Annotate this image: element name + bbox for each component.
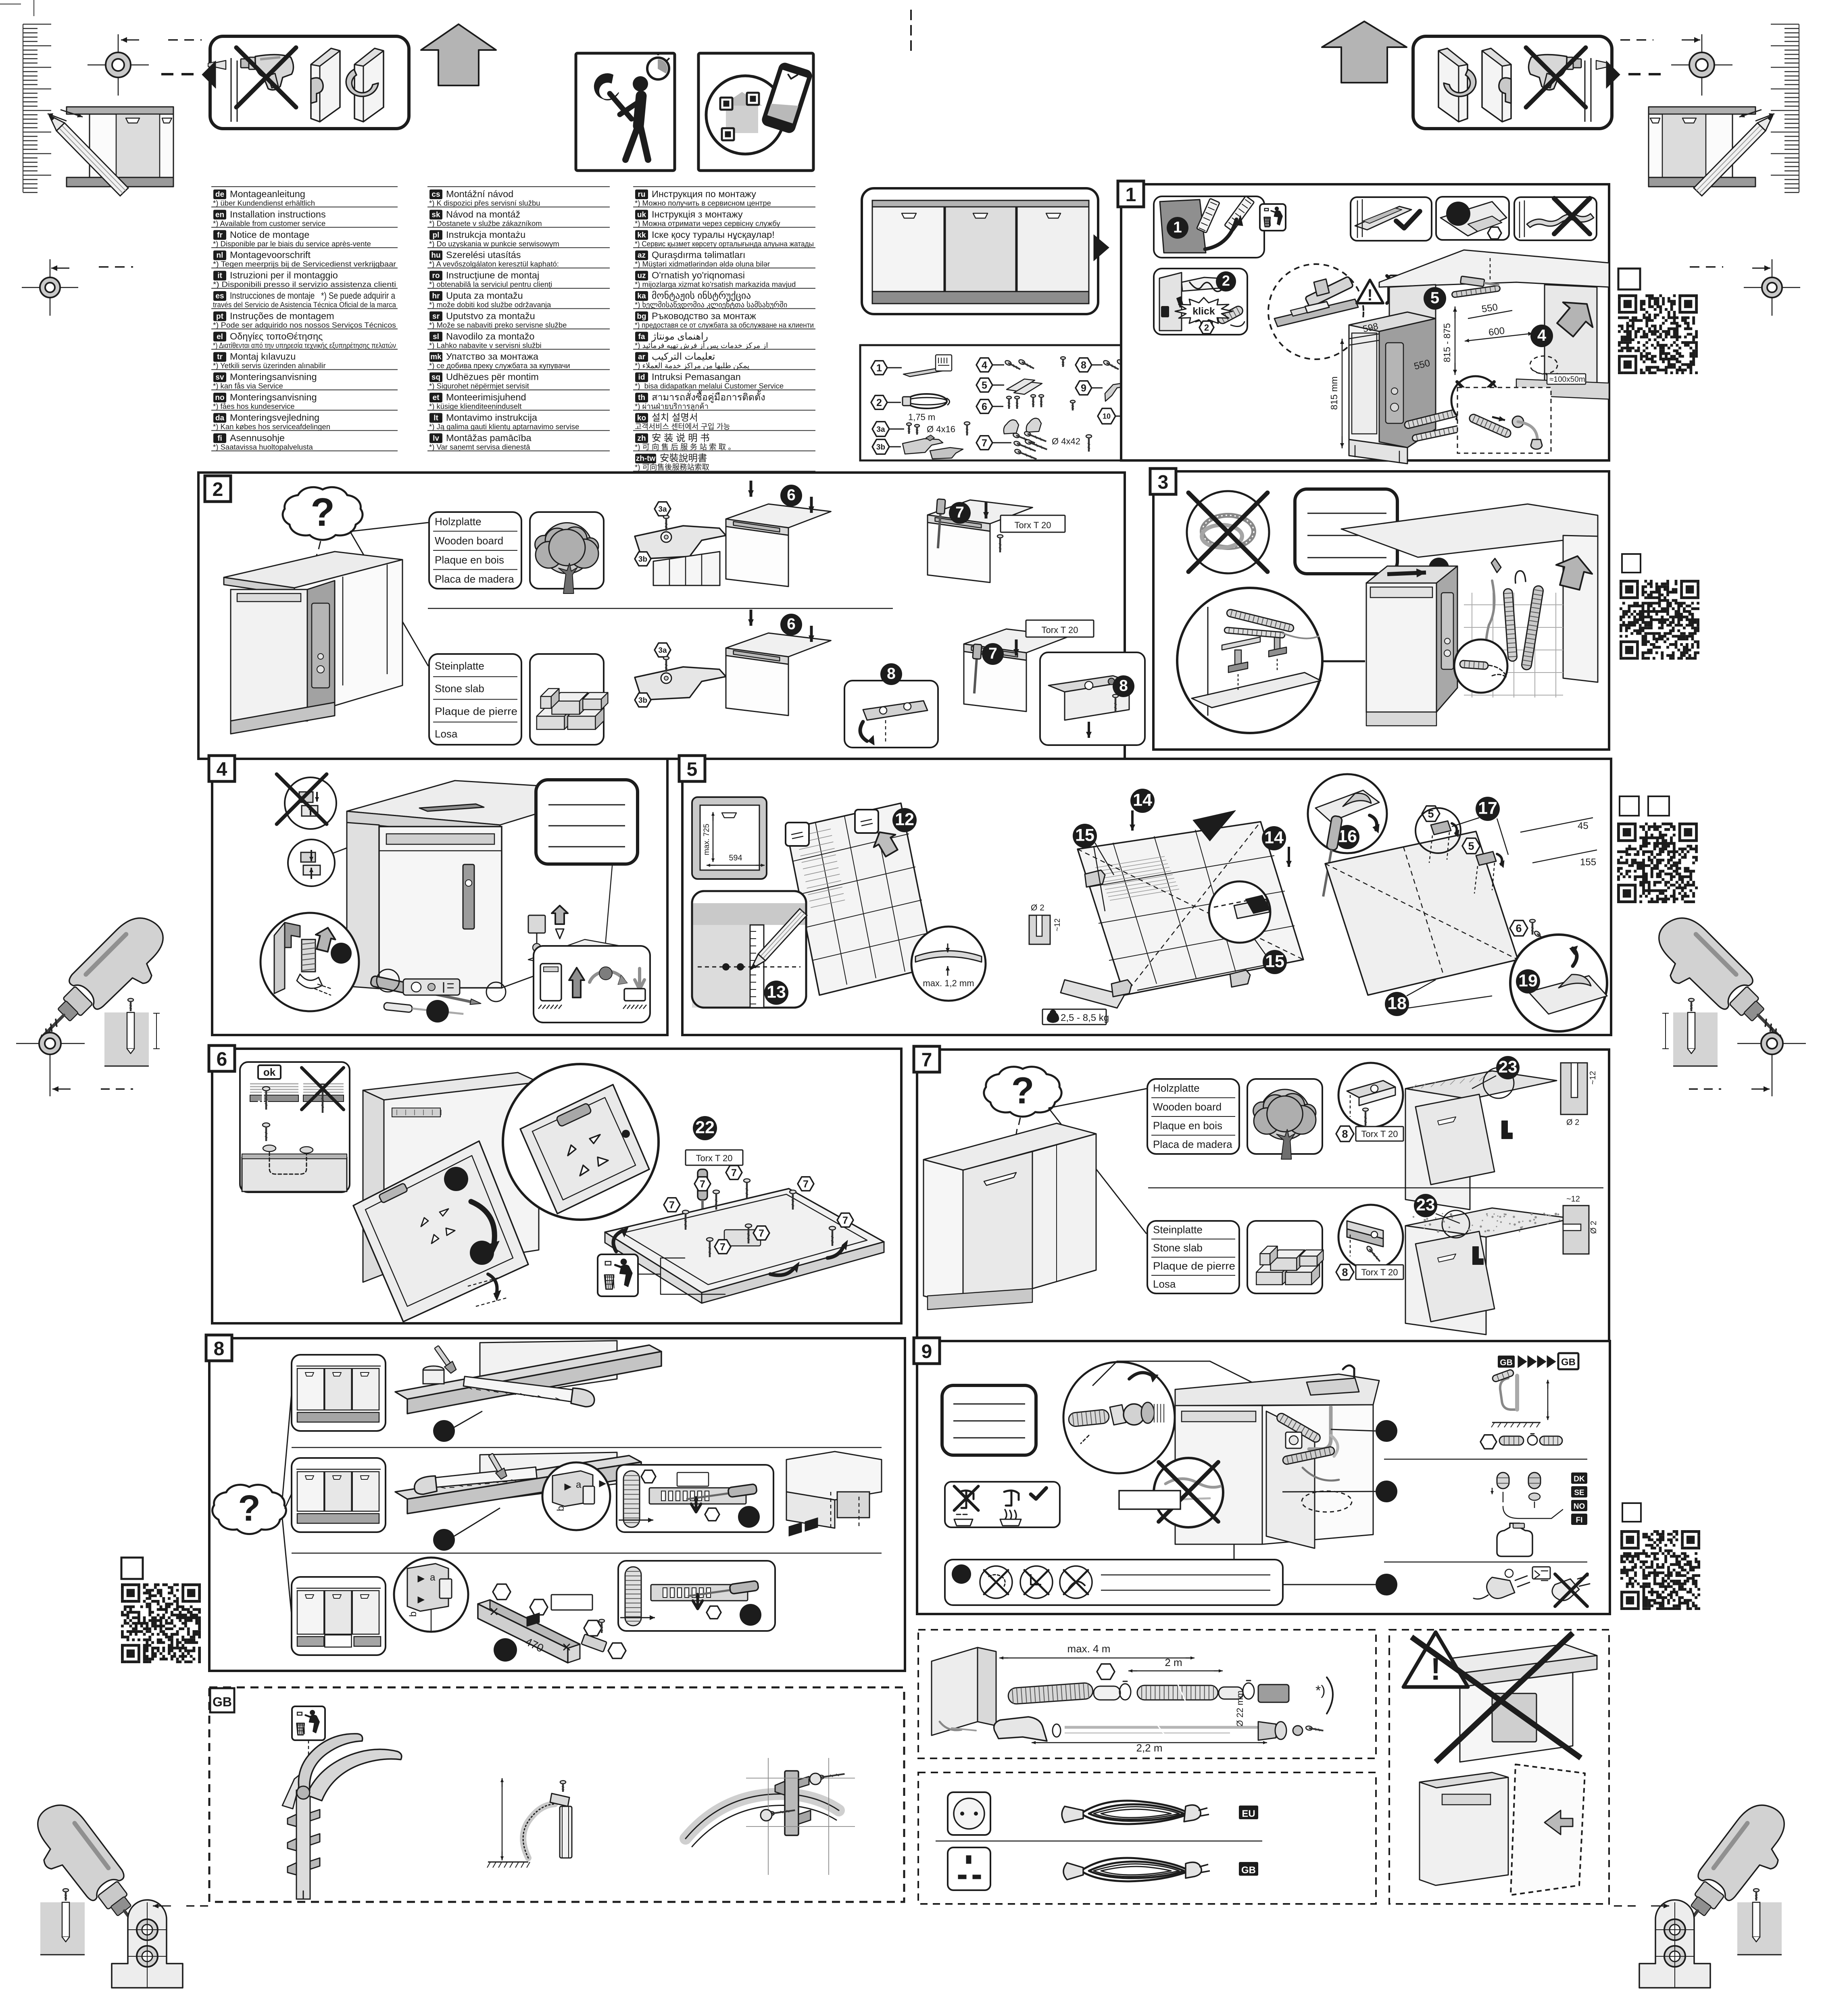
svg-text:18: 18 [1387,994,1407,1013]
svg-text:安裝說明書: 安裝說明書 [660,453,707,463]
svg-text:*) Disponible par le biais du: *) Disponible par le biais du service ap… [213,240,371,248]
svg-text:Ø 2: Ø 2 [1031,903,1044,912]
svg-text:Stone slab: Stone slab [435,683,484,695]
svg-text:Placa de madera: Placa de madera [435,573,514,585]
svg-text:Instrucciones de montaje *): Instrucciones de montaje *) Se puede adq… [230,290,396,301]
svg-text:8: 8 [1342,1266,1348,1279]
svg-text:max. 725: max. 725 [703,824,711,855]
svg-text:Montāžas pamācība: Montāžas pamācība [446,433,532,443]
svg-text:Οδηγίες τοποΘέτησης: Οδηγίες τοποΘέτησης [230,331,323,342]
svg-text:Іске қосу туралы нұсқаулар!: Іске қосу туралы нұсқаулар! [652,229,775,240]
svg-text:*) 可 向 售 后 服 务 站 索 取 。: *) 可 向 售 后 服 务 站 索 取 。 [635,443,736,451]
svg-text:2: 2 [1222,273,1230,289]
svg-text:?: ? [238,1488,261,1529]
svg-text:max. 1,2 mm: max. 1,2 mm [923,978,974,988]
svg-text:*) Ją galima gauti klientų apt: *) Ją galima gauti klientų aptarnavimo s… [429,422,579,431]
svg-text:*) Yetkili servis üzerinden al: *) Yetkili servis üzerinden alınabilir [213,361,326,370]
svg-text:*) A vevőszolgálaton keresztül: *) A vevőszolgálaton keresztül kapható: [429,260,559,268]
svg-text:راهنمای مونتاژ: راهنمای مونتاژ [651,331,708,342]
svg-text:*) يمكن طلبها من مراكز خدمة ال: *) يمكن طلبها من مراكز خدمة العملاء [635,361,749,370]
svg-text:Návod na montáž: Návod na montáž [446,209,520,219]
svg-text:Plaque en bois: Plaque en bois [1153,1120,1222,1132]
svg-text:*) Lahko nabavite v servisni s: *) Lahko nabavite v servisni službi [429,341,542,350]
svg-text:*) über Kundendienst erhältlic: *) über Kundendienst erhältlich [213,199,315,207]
svg-text:ko: ko [637,414,646,422]
svg-text:*) предоставя се от службата з: *) предоставя се от службата за обслужва… [635,321,814,329]
svg-text:SE: SE [1574,1489,1584,1497]
svg-text:hu: hu [431,251,440,260]
svg-text:1: 1 [876,362,882,374]
svg-text:Torx T 20: Torx T 20 [696,1153,733,1163]
svg-text:Torx T 20: Torx T 20 [1042,625,1078,635]
svg-text:Montaj kılavuzu: Montaj kılavuzu [230,351,296,362]
svg-text:hr: hr [432,292,440,300]
svg-text:*) Saatavissa huoltopalvelusta: *) Saatavissa huoltopalvelusta [213,443,313,451]
svg-text:lt: lt [434,414,438,422]
svg-text:fa: fa [638,333,645,341]
svg-text:Plaque de pierre: Plaque de pierre [1153,1260,1235,1272]
svg-text:*) از مرکز خدمات پس از فرش تهی: *) از مرکز خدمات پس از فرش تهیه فرمائید [635,341,768,350]
svg-text:2: 2 [876,397,882,408]
svg-text:NO: NO [1574,1502,1585,1511]
svg-text:O'rnatish yo'riqnomasi: O'rnatish yo'riqnomasi [652,270,745,281]
svg-text:6: 6 [217,1049,227,1070]
svg-text:9: 9 [921,1341,932,1362]
svg-text:8: 8 [887,665,896,682]
svg-text:2: 2 [213,479,223,500]
svg-text:*) bisa didapatkan melalui Cu: *) bisa didapatkan melalui Customer Serv… [635,382,784,390]
svg-text:მონტაჟის ინსტრუქცია: მონტაჟის ინსტრუქცია [652,290,751,301]
svg-text:*) Можно получить в сервисном: *) Можно получить в сервисном центре [635,199,771,207]
svg-text:et: et [433,394,440,402]
svg-text:FI: FI [1576,1516,1583,1524]
svg-text:7: 7 [955,504,964,521]
svg-text:*) Pode ser adquirido nos noss: *) Pode ser adquirido nos nossos Serviço… [213,321,396,329]
svg-text:สามารถสั่งซื้อคู่มือการติดตั้ง: สามารถสั่งซื้อคู่มือการติดตั้ง [652,390,765,403]
svg-text:*) Dostanete v službe zákazník: *) Dostanete v službe zákazníkom [429,219,542,227]
svg-text:*) obtenabilă la serviciul pen: *) obtenabilă la serviciul pentru clienţ… [429,280,552,289]
svg-text:sq: sq [432,373,440,382]
svg-text:*) može dobiti kod službe održ: *) može dobiti kod službe održavanja [429,300,551,309]
svg-text:Intruksi Pemasangan: Intruksi Pemasangan [652,372,741,382]
svg-text:12: 12 [895,810,914,829]
svg-text:GB: GB [1561,1357,1576,1368]
svg-text:14: 14 [1133,791,1152,810]
svg-text:Holzplatte: Holzplatte [435,515,482,527]
svg-text:Uputa za montažu: Uputa za montažu [446,290,523,301]
svg-text:Stone slab: Stone slab [1153,1242,1203,1254]
svg-text:Monteringsanvisning: Monteringsanvisning [230,372,317,382]
svg-text:3b: 3b [876,443,885,452]
svg-text:7: 7 [921,1050,932,1071]
svg-text:تعليمات التركيب: تعليمات التركيب [652,351,715,362]
svg-text:it: it [217,272,222,280]
svg-text:Instruções de montagem: Instruções de montagem [230,310,334,321]
svg-text:Ø 22 mm: Ø 22 mm [1235,1691,1245,1727]
svg-text:zh-tw: zh-tw [636,454,656,463]
svg-text:2,5 - 8,5 kg: 2,5 - 8,5 kg [1061,1012,1109,1023]
svg-text:pt: pt [216,312,224,321]
svg-text:Plaque en bois: Plaque en bois [435,554,504,566]
svg-text:klick: klick [1192,306,1215,317]
svg-text:id: id [638,373,645,382]
svg-text:4: 4 [982,360,987,371]
svg-text:b: b [408,1612,419,1617]
svg-text:*) Var saņemt servisa dienestā: *) Var saņemt servisa dienestā [429,443,530,451]
svg-text:*) 可向售後服務站索取: *) 可向售後服務站索取 [635,463,709,471]
svg-text:*) се добива преку службата за: *) се добива преку службата за купувачи [429,361,570,370]
svg-text:no: no [215,394,224,402]
svg-text:ok: ok [263,1066,276,1078]
svg-text:*) Müştəri xidmətlərindən əldə: *) Müştəri xidmətlərindən əldə oluna bil… [635,260,770,268]
svg-text:Ръководство за монтаж: Ръководство за монтаж [652,310,756,321]
svg-text:!: ! [1367,286,1372,304]
svg-text:th: th [638,394,645,402]
svg-text:安 装 说 明 书: 安 装 说 明 书 [652,433,710,443]
svg-text:Quraşdırma təlimatları: Quraşdırma təlimatları [652,250,745,260]
svg-text:15: 15 [1075,826,1094,845]
svg-text:≈100x50m: ≈100x50m [1549,375,1585,384]
svg-text:GB: GB [1241,1865,1256,1876]
svg-text:Placa de madera: Placa de madera [1153,1138,1232,1150]
svg-text:max. 4 m: max. 4 m [1067,1643,1111,1655]
svg-text:7: 7 [988,645,997,662]
svg-text:Montážní návod: Montážní návod [446,189,513,199]
svg-text:en: en [215,210,224,219]
svg-text:*) K dispozici přes servisní s: *) K dispozici přes servisní službu [429,199,540,207]
svg-text:23: 23 [1499,1057,1518,1076]
svg-text:*) Available from customer ser: *) Available from customer service [213,219,325,227]
svg-text:Installation instructions: Installation instructions [230,209,326,219]
svg-text:10: 10 [1103,412,1111,420]
svg-text:2: 2 [1204,323,1209,333]
svg-text:6: 6 [1516,923,1522,935]
svg-text:Plaque de pierre: Plaque de pierre [435,705,517,717]
svg-text:14: 14 [1264,828,1284,848]
svg-text:7: 7 [982,437,987,449]
svg-text:Инструкция по монтажу: Инструкция по монтажу [652,189,756,199]
svg-text:4: 4 [217,759,227,780]
svg-text:uk: uk [637,210,646,219]
svg-text:Instrucţiune de montaj: Instrucţiune de montaj [446,270,539,281]
svg-text:8: 8 [214,1338,225,1360]
svg-text:Ø 2: Ø 2 [1589,1221,1598,1234]
svg-text:uz: uz [637,272,646,280]
svg-text:az: az [638,251,646,260]
svg-text:Szerelési utasítás: Szerelési utasítás [446,250,521,260]
svg-text:*) Tegen meerprijs bij de Serv: *) Tegen meerprijs bij de Servicedienst … [213,260,396,268]
svg-text:*): *) [1315,1683,1326,1698]
svg-text:Navodilo za montažo: Navodilo za montažo [446,331,534,342]
svg-text:*) Do uzyskania w punkcie serw: *) Do uzyskania w punkcie serwisowym [429,240,559,248]
svg-text:7: 7 [700,1179,705,1190]
svg-text:*) Διατίθενται από την υπηρεσί: *) Διατίθενται από την υπηρεσία τεχνικής… [213,341,396,350]
svg-text:19: 19 [1518,971,1538,991]
svg-text:*) mijozlarga xizmat ko'rsatis: *) mijozlarga xizmat ko'rsatish markazid… [635,280,796,289]
svg-text:6: 6 [787,615,796,633]
svg-text:sv: sv [215,373,224,382]
svg-text:1: 1 [1173,219,1182,236]
svg-text:Losa: Losa [435,728,458,740]
svg-text:el: el [217,333,223,341]
svg-text:zh: zh [637,434,646,443]
svg-text:*) Kan købes hos serviceafdeli: *) Kan købes hos serviceafdelingen [213,422,330,431]
svg-text:7: 7 [759,1228,764,1239]
svg-text:Monteerimisjuhend: Monteerimisjuhend [446,392,526,402]
svg-text:es: es [215,292,224,300]
svg-text:de: de [215,190,224,199]
svg-text:8: 8 [1342,1128,1348,1140]
svg-text:nl: nl [217,251,223,260]
svg-text:Steinplatte: Steinplatte [1153,1224,1203,1236]
svg-text:b: b [555,1506,566,1511]
svg-text:Montavimo instrukcija: Montavimo instrukcija [446,412,538,423]
svg-text:~12: ~12 [1589,1071,1597,1085]
svg-text:1,75 m: 1,75 m [908,412,935,422]
svg-text:Istruzioni per il montaggio: Istruzioni per il montaggio [230,270,338,281]
svg-text:7: 7 [731,1167,737,1179]
svg-text:*) fåes hos kundeservice: *) fåes hos kundeservice [213,402,295,410]
svg-text:da: da [215,414,225,422]
svg-text:4: 4 [1537,327,1547,344]
svg-text:ro: ro [432,272,440,280]
svg-text:Montagevoorschrift: Montagevoorschrift [230,250,311,260]
svg-text:8: 8 [1081,360,1086,371]
svg-text:5: 5 [982,380,987,391]
svg-text:23: 23 [1416,1195,1435,1214]
svg-text:7: 7 [803,1179,809,1190]
svg-text:Instrukcja montażu: Instrukcja montażu [446,229,525,240]
svg-text:Notice de montage: Notice de montage [230,229,309,240]
svg-text:*) Disponibili presso il servi: *) Disponibili presso il servizio assist… [213,280,396,289]
svg-text:?: ? [311,490,335,534]
svg-text:*) küsige klienditeeninduselt: *) küsige klienditeeninduselt [429,402,521,410]
svg-text:13: 13 [767,983,786,1002]
svg-text:Torx T 20: Torx T 20 [1361,1267,1398,1277]
svg-text:7: 7 [842,1215,848,1226]
svg-text:EU: EU [1242,1808,1255,1819]
svg-text:*) Сервис қызмет көрсету ортал: *) Сервис қызмет көрсету орталығында алу… [635,240,814,248]
svg-text:*) ხელმისაწვდომია კლიენტთა სამ: *) ხელმისაწვდომია კლიენტთა სამსახურში [635,300,787,309]
svg-text:Monteringsanvisning: Monteringsanvisning [230,392,317,402]
svg-text:fi: fi [217,434,222,443]
svg-text:Torx T 20: Torx T 20 [1015,520,1051,530]
svg-text:Monteringsvejledning: Monteringsvejledning [230,412,319,423]
svg-text:ka: ka [637,292,646,300]
svg-text:Asennusohje: Asennusohje [230,433,285,443]
svg-text:3b: 3b [638,555,647,564]
svg-text:Torx T 20: Torx T 20 [1361,1129,1398,1139]
svg-text:~12: ~12 [1053,918,1062,931]
svg-text:8: 8 [1119,677,1128,694]
svg-text:kk: kk [637,231,646,240]
svg-text:sl: sl [433,333,439,341]
svg-text:6: 6 [787,486,796,504]
svg-text:*) Можна отримати через сервіс: *) Можна отримати через сервісну службу [635,219,780,227]
svg-text:3a: 3a [658,646,667,655]
svg-text:Інструкція з монтажу: Інструкція з монтажу [652,209,743,219]
svg-text:sr: sr [432,312,440,321]
svg-text:Упатство за монтажа: Упатство за монтажа [446,351,539,362]
svg-text:Wooden board: Wooden board [1153,1101,1222,1113]
svg-text:a: a [576,1479,582,1490]
svg-text:ar: ar [638,353,646,361]
svg-text:*) ผ่านฝ่ายบริการลูกค้า: *) ผ่านฝ่ายบริการลูกค้า [635,402,709,411]
svg-text:Montageanleitung: Montageanleitung [230,189,305,199]
svg-text:550: 550 [1481,302,1498,314]
svg-text:5: 5 [1430,289,1439,307]
svg-text:tr: tr [217,353,223,361]
svg-text:2,2 m: 2,2 m [1136,1742,1162,1754]
svg-text:17: 17 [1478,799,1497,818]
svg-text:5: 5 [687,759,698,780]
svg-text:5: 5 [1468,840,1474,852]
svg-text:sk: sk [432,210,440,219]
svg-text:mk: mk [430,353,442,361]
svg-text:594: 594 [729,854,742,862]
svg-text:pl: pl [433,231,440,240]
svg-text:7: 7 [720,1241,725,1253]
svg-text:22: 22 [695,1118,715,1137]
svg-text:bg: bg [637,312,646,321]
svg-text:7: 7 [669,1200,675,1211]
svg-text:GB: GB [213,1695,232,1709]
svg-text:155: 155 [1580,857,1596,868]
svg-text:9: 9 [1081,383,1086,394]
svg-text:Steinplatte: Steinplatte [435,660,484,672]
svg-text:6: 6 [982,401,987,412]
svg-text:고객서비스 센터에서 구입 가능: 고객서비스 센터에서 구입 가능 [635,422,730,431]
svg-text:Ø 2: Ø 2 [1566,1118,1579,1127]
svg-text:3a: 3a [658,505,667,514]
svg-text:45: 45 [1578,821,1589,831]
svg-text:815 - 875: 815 - 875 [1442,323,1452,362]
svg-text:DK: DK [1574,1475,1585,1483]
svg-text:*) kan fås via Service: *) kan fås via Service [213,382,283,390]
svg-text:?: ? [1011,1069,1034,1111]
svg-text:cs: cs [432,190,440,199]
svg-text:Ø 4x16: Ø 4x16 [927,424,955,434]
svg-text:설치 설명서: 설치 설명서 [652,412,698,423]
svg-text:3a: 3a [876,425,885,434]
svg-text:a: a [430,1572,436,1583]
svg-text:*) Može se nabaviti preko serv: *) Može se nabaviti preko servisne služb… [429,321,567,329]
svg-text:Losa: Losa [1153,1278,1176,1290]
svg-text:1: 1 [1126,184,1136,206]
svg-text:2 m: 2 m [1165,1656,1182,1668]
svg-text:3b: 3b [638,696,647,705]
svg-text:ru: ru [638,190,646,199]
svg-text:*) Sigurohet nëpërmjet servisi: *) Sigurohet nëpërmjet servisit [429,382,529,390]
svg-text:través del Servicio de Asisten: través del Servicio de Asistencia Técnic… [213,300,396,309]
svg-text:Udhëzues për montim: Udhëzues për montim [446,372,539,382]
svg-text:Wooden board: Wooden board [435,535,503,547]
svg-text:600: 600 [1488,325,1505,338]
svg-text:lv: lv [433,434,439,443]
svg-text:3: 3 [1158,472,1169,493]
svg-text:15: 15 [1265,952,1284,971]
svg-text:fr: fr [217,231,223,240]
svg-text:GB: GB [1500,1358,1513,1367]
svg-text:815 mm: 815 mm [1329,376,1339,410]
svg-text:Ø 4x42: Ø 4x42 [1052,436,1080,446]
svg-text:Uputstvo za montažu: Uputstvo za montažu [446,310,535,321]
svg-text:Holzplatte: Holzplatte [1153,1082,1200,1094]
svg-text:~12: ~12 [1566,1195,1580,1204]
